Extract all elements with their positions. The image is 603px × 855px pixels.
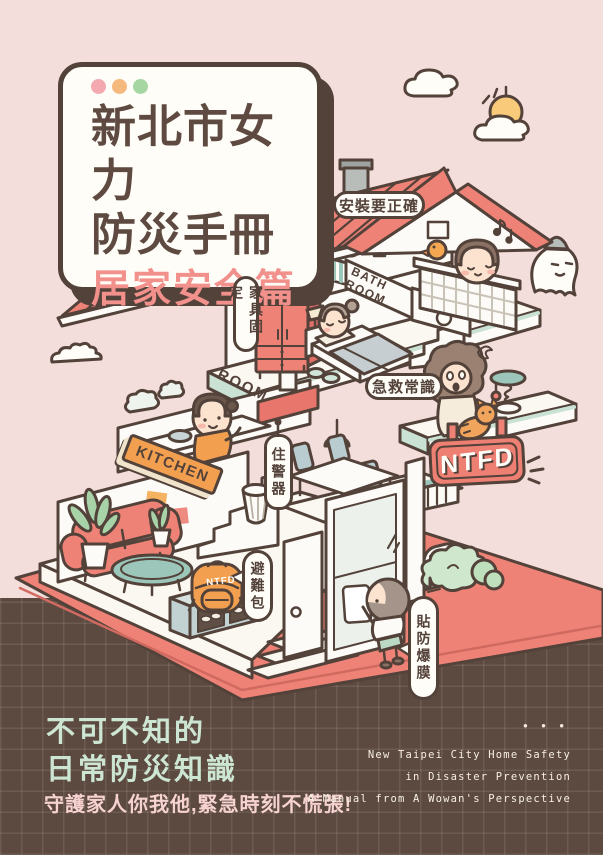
title-line1: 新北市女力 — [91, 100, 317, 208]
cooking-pot — [169, 431, 191, 442]
bathing-woman — [456, 240, 498, 283]
cat-tree — [491, 371, 525, 413]
window-dots — [91, 79, 317, 94]
ntfd-sign-text: NTFD — [440, 442, 515, 480]
subtitle: 居家安全篇 — [91, 268, 317, 312]
label-evacuation-bag: 避難包 — [242, 550, 273, 622]
sign-post — [497, 418, 506, 436]
cloud-icon — [405, 70, 457, 96]
window-dot-icon — [133, 79, 148, 94]
footer-english-line3: A Manual from A Wowan's Perspective — [308, 788, 571, 810]
title-card: 新北市女力 防災手冊 居家安全篇 — [58, 62, 322, 292]
footer-dots: • • • — [523, 718, 569, 733]
slipper-icon — [308, 369, 324, 378]
window-dot-icon — [112, 79, 127, 94]
label-residential-alarm: 住警器 — [264, 434, 293, 510]
poster: 新北市女力 防災手冊 居家安全篇 安裝要正確 家具固定 BATH ROOM RO… — [0, 0, 603, 855]
footer-tagline: 守護家人你我他,緊急時刻不慌張! — [44, 788, 352, 817]
steam-cloud — [159, 381, 184, 398]
steam-cloud — [125, 390, 158, 412]
front-door — [284, 532, 322, 658]
coffee-table — [112, 555, 192, 595]
attic-window — [428, 222, 448, 238]
label-furniture-fixing: 家具固定 — [233, 276, 259, 352]
footer-headline-line1: 不可不知的 — [46, 708, 206, 750]
footer-english: New Taipei City Home Safety in Disaster … — [308, 744, 571, 810]
label-blast-film: 貼防爆膜 — [408, 596, 439, 700]
cloud-icon — [475, 116, 529, 140]
window-dot-icon — [91, 79, 106, 94]
title-line2: 防災手冊 — [91, 208, 317, 262]
slipper-icon — [323, 374, 339, 383]
sparkle-dashes — [528, 457, 543, 483]
label-first-aid: 急救常識 — [365, 373, 443, 400]
footer-english-line2: in Disaster Prevention — [308, 766, 571, 788]
ntfd-hanging-sign: NTFD — [428, 435, 526, 488]
bush — [422, 544, 503, 590]
label-install-correctly: 安裝要正確 — [333, 191, 425, 219]
footer-english-line1: New Taipei City Home Safety — [308, 744, 571, 766]
cloud-icon — [52, 343, 102, 362]
footer-headline-line2: 日常防災知識 — [46, 746, 238, 788]
